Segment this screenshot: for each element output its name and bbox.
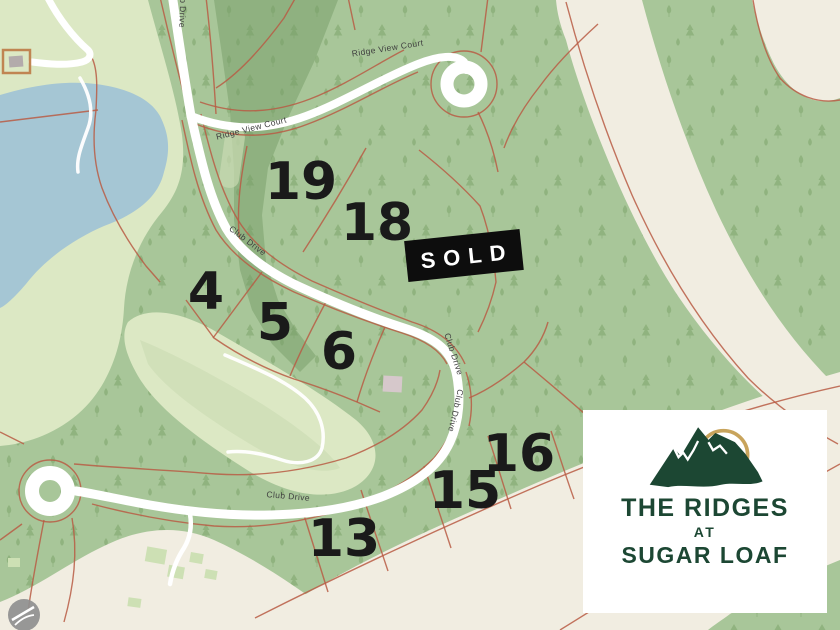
lot-number-label: 13 xyxy=(308,509,380,569)
lot-number-label: 15 xyxy=(429,461,501,521)
lot-number-label: 6 xyxy=(321,322,357,382)
building-icon xyxy=(383,376,403,393)
watermark-logo-icon xyxy=(8,599,40,630)
lot-number-label: 4 xyxy=(188,262,224,322)
mountain-logo-icon xyxy=(635,418,775,494)
lot-number-label: 19 xyxy=(265,152,337,212)
logo-card: THE RIDGES AT SUGAR LOAF xyxy=(583,410,827,613)
lot-number-label: 5 xyxy=(257,293,293,353)
lot-number-label: 18 xyxy=(341,193,413,253)
logo-line-2: AT xyxy=(694,523,717,541)
logo-line-3: SUGAR LOAF xyxy=(621,541,788,570)
logo-line-1: THE RIDGES xyxy=(621,494,789,523)
road-name-label: Club Drive xyxy=(177,0,189,28)
plat-map-screenshot: Ridge View Court Ridge View Court Club D… xyxy=(0,0,840,630)
